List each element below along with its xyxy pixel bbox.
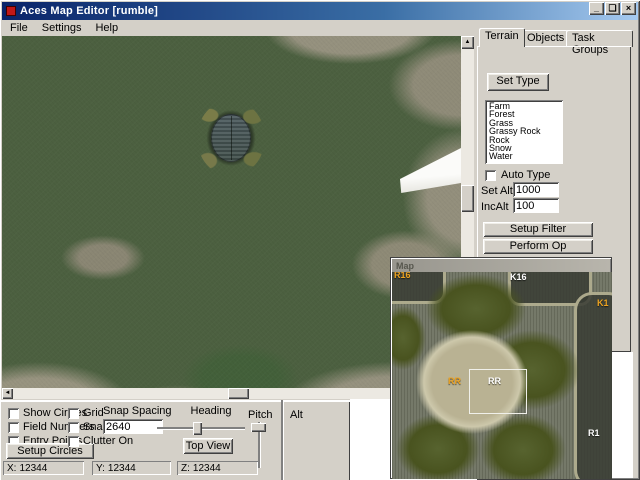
snap-checkbox[interactable] xyxy=(68,422,79,433)
map-sector-label: K16 xyxy=(510,272,527,282)
terrain-type-item[interactable]: Water xyxy=(489,152,559,160)
coord-y-value: 12344 xyxy=(108,463,136,474)
tab-objects[interactable]: Objects xyxy=(521,30,570,47)
airfield-core xyxy=(211,114,251,162)
close-icon[interactable]: × xyxy=(621,2,636,15)
scroll-left-icon[interactable]: ◄ xyxy=(2,388,13,399)
map-sector-label: K1 xyxy=(597,298,609,308)
map-sector-label: R1 xyxy=(588,428,600,438)
vertical-scroll-thumb[interactable] xyxy=(461,185,474,212)
snap-spacing-input[interactable] xyxy=(103,419,163,434)
snap-spacing-label: Snap Spacing xyxy=(103,405,172,417)
perform-op-button[interactable]: Perform Op xyxy=(483,239,593,254)
heading-label: Heading xyxy=(176,405,246,417)
auto-type-label: Auto Type xyxy=(501,169,550,181)
inc-alt-input[interactable] xyxy=(513,198,559,213)
show-circles-checkbox[interactable] xyxy=(8,408,19,419)
bottom-control-panel: Show Circles Field Numbers Entry Points … xyxy=(0,400,350,480)
map-sector-label: R16 xyxy=(394,272,411,280)
tab-task-groups[interactable]: Task Groups xyxy=(566,30,633,47)
heading-slider[interactable] xyxy=(157,427,245,429)
setup-circles-button[interactable]: Setup Circles xyxy=(6,443,94,459)
map-window: Map R16 K16 K1 RR RR R1 xyxy=(390,257,612,479)
coord-y-axis: Y: xyxy=(96,463,105,474)
set-alt-label: Set Alt xyxy=(481,185,513,197)
menu-file[interactable]: File xyxy=(10,22,28,34)
pitch-slider-thumb[interactable] xyxy=(251,423,266,432)
maximize-icon[interactable]: ❏ xyxy=(605,2,620,15)
coord-z-value: 12344 xyxy=(193,463,221,474)
airfield-object[interactable] xyxy=(197,100,265,176)
heading-slider-thumb[interactable] xyxy=(193,422,202,435)
app-window: Aces Map Editor [rumble] _ ❏ × File Sett… xyxy=(0,0,640,480)
map-view[interactable]: R16 K16 K1 RR RR R1 xyxy=(392,272,612,479)
window-title: Aces Map Editor [rumble] xyxy=(20,5,158,17)
clutter-on-checkbox[interactable] xyxy=(68,436,79,447)
map-sector-label: RR xyxy=(488,376,501,386)
coord-x-value: 12344 xyxy=(19,463,47,474)
menu-help[interactable]: Help xyxy=(95,22,118,34)
grid-checkbox[interactable] xyxy=(68,408,79,419)
app-icon xyxy=(6,6,16,16)
field-numbers-checkbox[interactable] xyxy=(8,422,19,433)
title-bar: Aces Map Editor [rumble] xyxy=(2,2,638,20)
alt-label: Alt xyxy=(290,409,303,421)
map-road xyxy=(574,292,612,479)
clutter-on-label: Clutter On xyxy=(83,435,133,447)
horizontal-scroll-thumb[interactable] xyxy=(228,388,249,399)
inc-alt-label: IncAlt xyxy=(481,201,509,213)
map-sector-label: RR xyxy=(448,376,461,386)
set-alt-input[interactable] xyxy=(513,182,559,197)
grid-label: Grid xyxy=(83,407,104,419)
coord-z-axis: Z: xyxy=(181,463,190,474)
scroll-up-icon[interactable]: ▲ xyxy=(461,36,474,49)
terrain-type-list[interactable]: Farm Forest Grass Grassy Rock Rock Snow … xyxy=(485,100,563,164)
tab-terrain[interactable]: Terrain xyxy=(479,28,525,47)
auto-type-checkbox[interactable] xyxy=(485,170,496,181)
menu-settings[interactable]: Settings xyxy=(42,22,82,34)
pitch-slider[interactable] xyxy=(258,422,260,468)
coord-x: X: 12344 xyxy=(3,461,84,475)
set-type-button[interactable]: Set Type xyxy=(487,73,549,91)
alt-slider[interactable] xyxy=(281,400,283,480)
map-title-bar[interactable]: Map xyxy=(392,259,610,272)
minimize-icon[interactable]: _ xyxy=(589,2,604,15)
coord-z: Z: 12344 xyxy=(177,461,258,475)
top-view-button[interactable]: Top View xyxy=(183,438,233,454)
coord-y: Y: 12344 xyxy=(92,461,171,475)
map-window-title: Map xyxy=(396,261,414,271)
pitch-label: Pitch xyxy=(248,409,272,421)
coord-x-axis: X: xyxy=(7,463,16,474)
setup-filter-button[interactable]: Setup Filter xyxy=(483,222,593,237)
